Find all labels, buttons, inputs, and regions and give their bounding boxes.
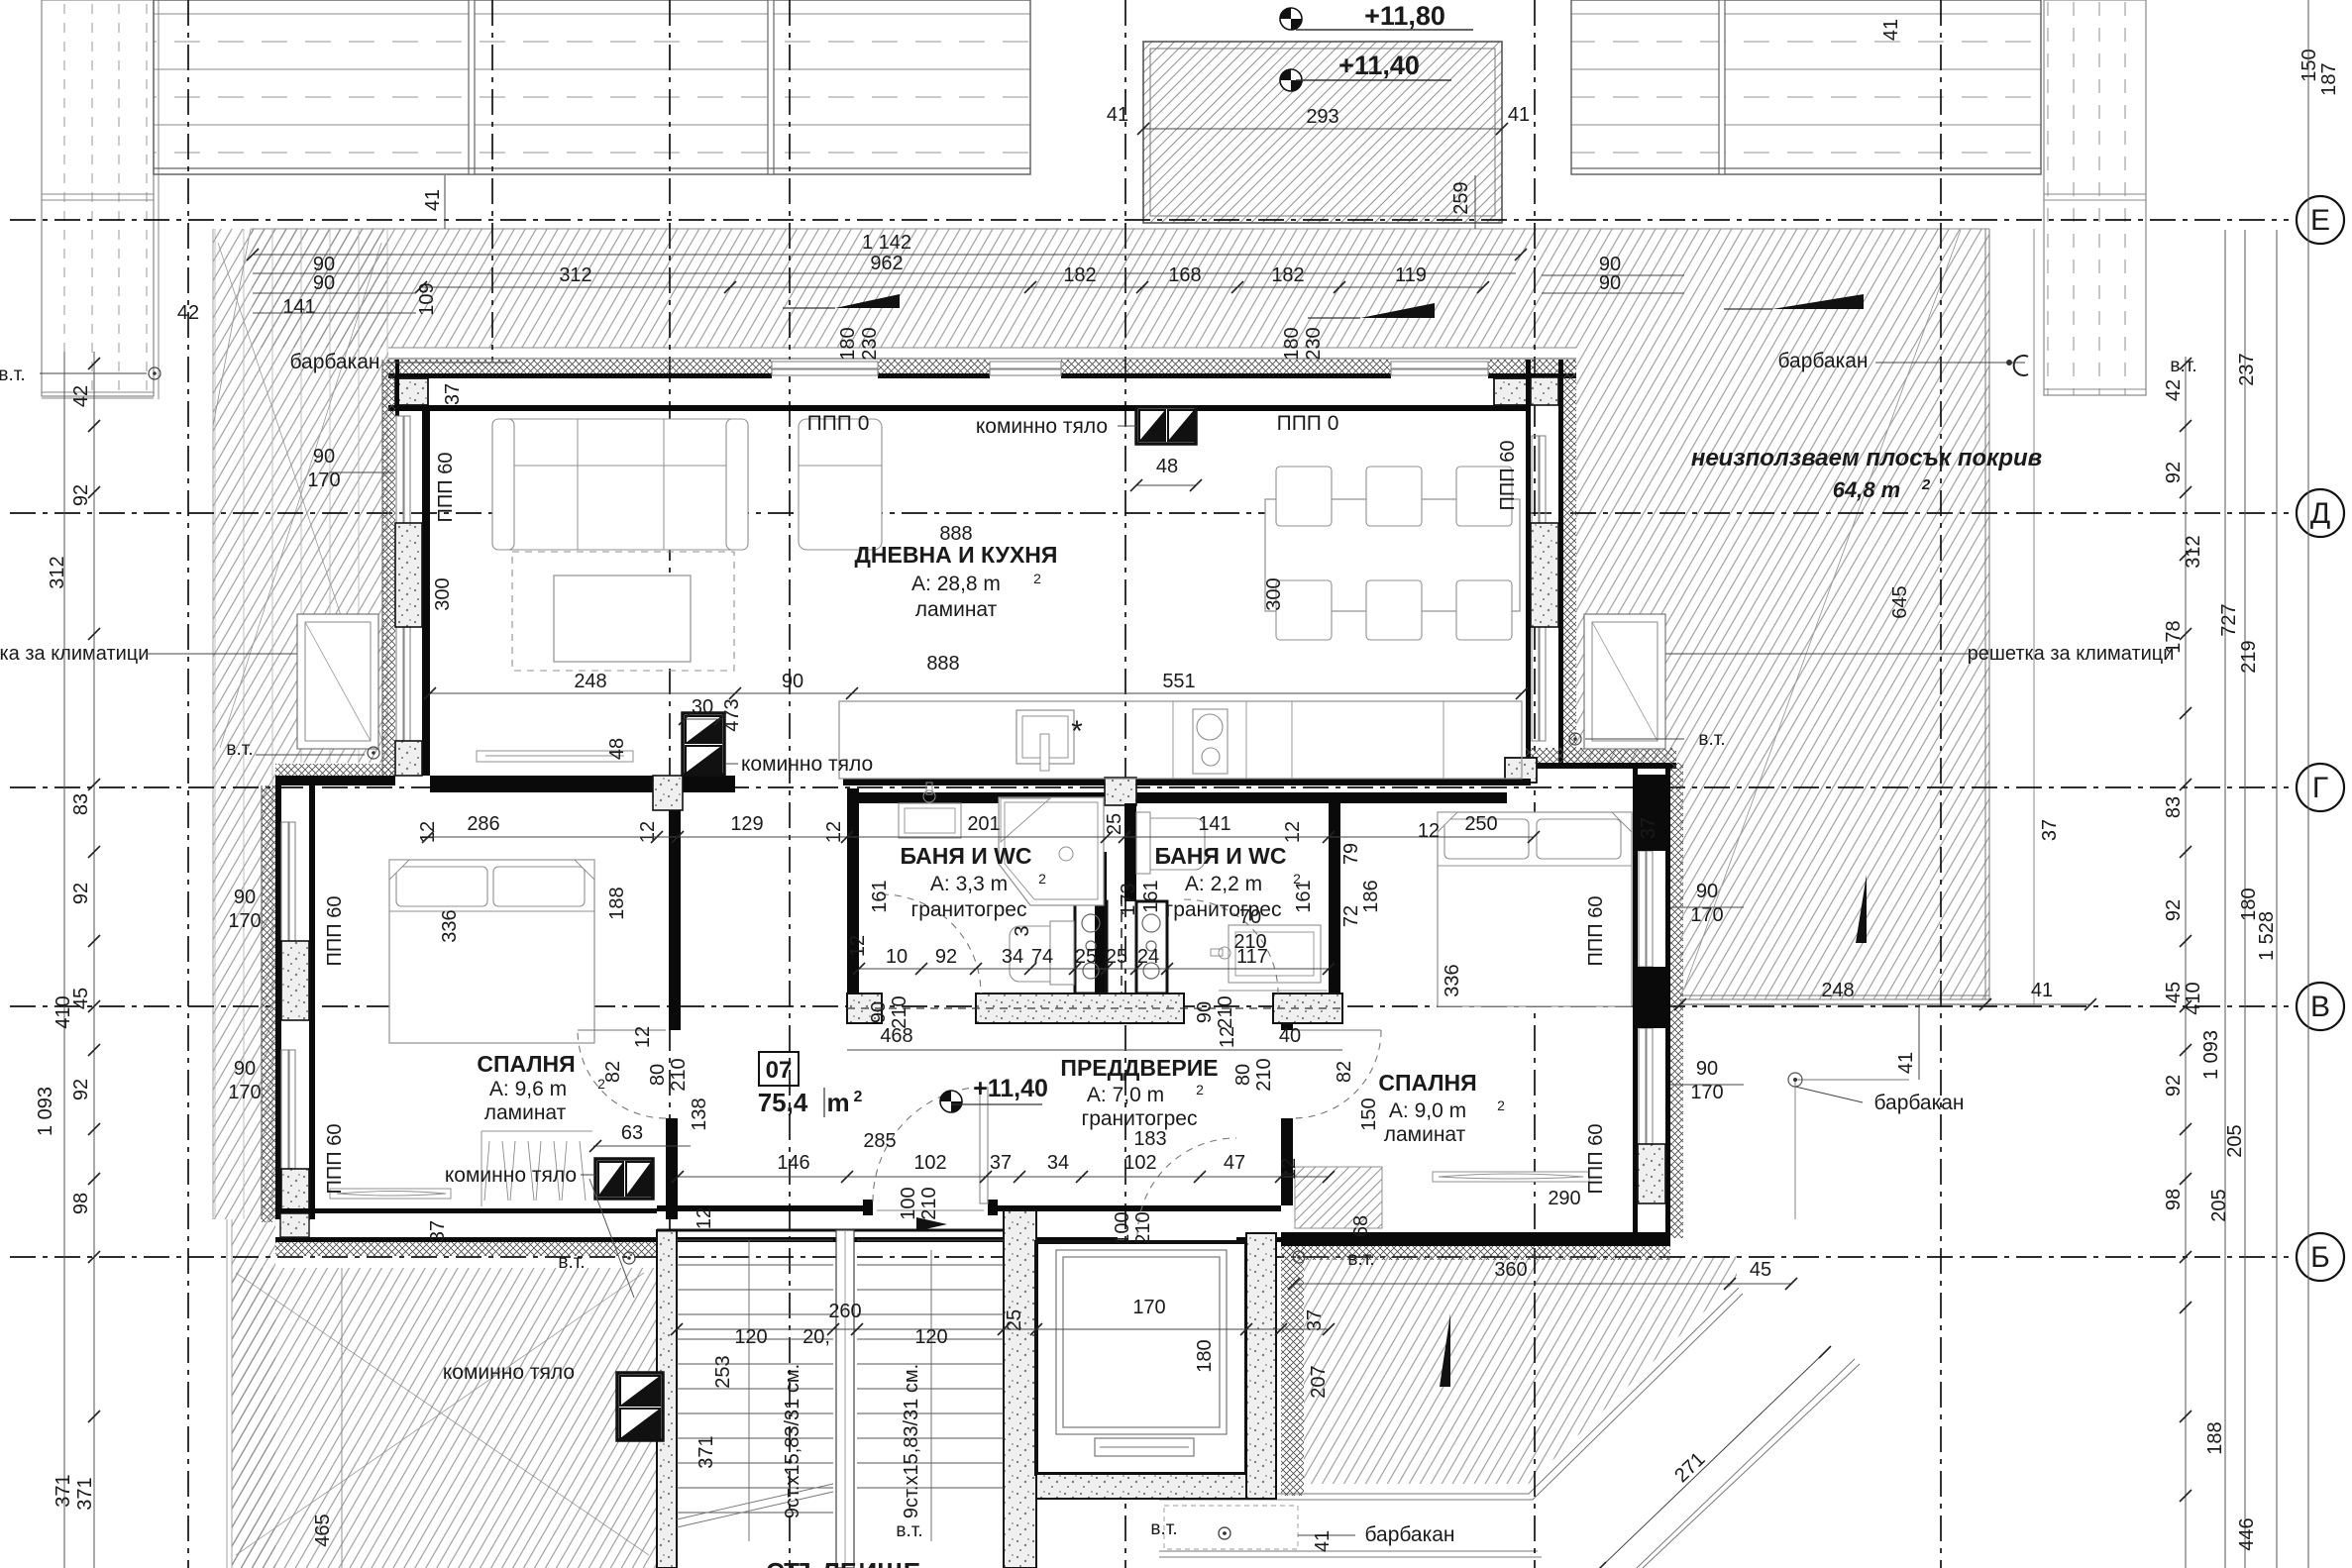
- svg-text:12: 12: [1418, 820, 1440, 842]
- svg-text:12: 12: [847, 935, 869, 957]
- svg-text:в.т.: в.т.: [896, 1520, 922, 1541]
- svg-text:07: 07: [766, 1057, 793, 1084]
- svg-text:ППП 60: ППП 60: [1497, 441, 1519, 511]
- svg-text:10: 10: [886, 946, 908, 968]
- svg-text:138: 138: [689, 1098, 710, 1130]
- svg-text:253: 253: [712, 1355, 734, 1388]
- svg-text:117: 117: [1236, 946, 1268, 968]
- svg-text:285: 285: [863, 1130, 896, 1152]
- svg-text:Д: Д: [2310, 497, 2330, 530]
- svg-text:41: 41: [1880, 19, 1902, 41]
- svg-text:90: 90: [868, 1001, 890, 1023]
- svg-text:248: 248: [1821, 980, 1854, 1001]
- svg-text:161: 161: [1293, 880, 1315, 912]
- svg-text:25: 25: [1004, 1309, 1025, 1331]
- svg-text:90: 90: [1696, 1058, 1718, 1080]
- svg-text:180: 180: [1281, 327, 1303, 360]
- svg-text:в.т.: в.т.: [1150, 1518, 1177, 1539]
- svg-text:12: 12: [632, 1026, 654, 1048]
- svg-text:92: 92: [2163, 899, 2185, 921]
- svg-text:2: 2: [854, 1089, 863, 1105]
- svg-text:1 093: 1 093: [35, 1087, 56, 1136]
- svg-text:45: 45: [1750, 1259, 1771, 1281]
- svg-text:1 093: 1 093: [2200, 1030, 2222, 1080]
- svg-text:37: 37: [427, 1220, 449, 1242]
- svg-text:962: 962: [870, 253, 903, 274]
- svg-text:9ст.х15,83/31 см.: 9ст.х15,83/31 см.: [901, 1364, 922, 1518]
- svg-text:25: 25: [1104, 813, 1125, 835]
- svg-text:410: 410: [2183, 982, 2204, 1014]
- svg-text:в.т.: в.т.: [1347, 1249, 1374, 1270]
- svg-text:гранитогрес: гранитогрес: [1082, 1107, 1198, 1130]
- svg-text:ламинат: ламинат: [915, 598, 998, 621]
- svg-text:гранитогрес: гранитогрес: [911, 898, 1027, 921]
- svg-text:25: 25: [1106, 946, 1127, 968]
- svg-text:37: 37: [1304, 1309, 1326, 1331]
- svg-text:42: 42: [2163, 379, 2185, 401]
- svg-text:102: 102: [1123, 1152, 1156, 1174]
- svg-text:63: 63: [621, 1122, 643, 1144]
- svg-text:3: 3: [1012, 925, 1033, 936]
- svg-text:727: 727: [2218, 603, 2240, 636]
- svg-text:12: 12: [1282, 821, 1304, 843]
- svg-text:12: 12: [823, 821, 845, 843]
- svg-text:12: 12: [1217, 1026, 1238, 1048]
- svg-text:+11,40: +11,40: [1338, 51, 1420, 80]
- svg-text:92: 92: [2163, 462, 2185, 483]
- svg-text:371: 371: [74, 1477, 96, 1510]
- svg-text:коминно тяло: коминно тяло: [443, 1361, 575, 1384]
- svg-text:210: 210: [1253, 1058, 1275, 1091]
- svg-text:барбакан: барбакан: [1777, 350, 1868, 372]
- svg-text:645: 645: [1889, 585, 1911, 618]
- svg-text:ППП 0: ППП 0: [807, 412, 870, 435]
- svg-text:146: 146: [777, 1152, 809, 1174]
- svg-text:180: 180: [837, 327, 859, 360]
- svg-text:300: 300: [432, 577, 454, 610]
- svg-text:210: 210: [668, 1058, 690, 1091]
- svg-text:41: 41: [1107, 104, 1128, 126]
- svg-text:37: 37: [2039, 819, 2061, 841]
- svg-text:m: m: [826, 1088, 849, 1117]
- svg-text:12: 12: [694, 1207, 715, 1229]
- svg-text:90: 90: [782, 671, 803, 692]
- svg-text:336: 336: [439, 909, 461, 942]
- svg-text:182: 182: [1271, 264, 1304, 286]
- svg-text:37: 37: [442, 383, 464, 405]
- svg-text:161: 161: [1140, 880, 1162, 912]
- svg-text:170: 170: [228, 1082, 261, 1103]
- svg-text:888: 888: [926, 653, 959, 675]
- svg-text:109: 109: [416, 282, 438, 315]
- svg-text:в.т.: в.т.: [558, 1252, 585, 1273]
- svg-text:в.т.: в.т.: [226, 739, 253, 760]
- svg-text:90: 90: [1696, 881, 1718, 902]
- svg-text:В: В: [2310, 991, 2330, 1023]
- svg-text:210: 210: [1215, 995, 1236, 1028]
- svg-text:41: 41: [2031, 980, 2053, 1001]
- svg-text:312: 312: [559, 264, 591, 286]
- svg-text:248: 248: [574, 671, 606, 692]
- svg-text:210: 210: [889, 995, 910, 1028]
- svg-text:90: 90: [313, 446, 335, 468]
- svg-text:168: 168: [1168, 264, 1201, 286]
- svg-text:80: 80: [1232, 1064, 1254, 1086]
- svg-text:150: 150: [2299, 49, 2320, 81]
- svg-text:решетка за климатици: решетка за климатици: [0, 643, 149, 665]
- svg-text:173: 173: [1118, 883, 1139, 915]
- svg-text:34: 34: [1002, 946, 1023, 968]
- svg-text:170: 170: [228, 910, 261, 932]
- svg-text:188: 188: [606, 887, 628, 919]
- svg-text:ППП 0: ППП 0: [1277, 412, 1339, 435]
- svg-text:286: 286: [467, 813, 499, 835]
- svg-text:300: 300: [1263, 577, 1285, 610]
- svg-text:82: 82: [602, 1061, 624, 1083]
- svg-text:9ст.х15,83/31 см.: 9ст.х15,83/31 см.: [782, 1364, 803, 1518]
- svg-text:293: 293: [1306, 106, 1338, 128]
- svg-text:83: 83: [70, 793, 92, 815]
- svg-text:гранитогрес: гранитогрес: [1166, 898, 1282, 921]
- svg-text:коминно тяло: коминно тяло: [976, 415, 1108, 438]
- svg-text:А: 7,0 m: А: 7,0 m: [1087, 1084, 1164, 1106]
- svg-text:92: 92: [70, 484, 92, 506]
- svg-text:188: 188: [2204, 1421, 2226, 1454]
- svg-text:41: 41: [1895, 1052, 1917, 1074]
- svg-text:98: 98: [2163, 1189, 2185, 1210]
- svg-text:92: 92: [2163, 1075, 2185, 1097]
- svg-text:219: 219: [2238, 640, 2260, 673]
- svg-text:12: 12: [1278, 1158, 1300, 1180]
- svg-text:37: 37: [1638, 817, 1659, 839]
- svg-text:64,8 m: 64,8 m: [1833, 477, 1901, 502]
- svg-text:40: 40: [1279, 1025, 1301, 1047]
- svg-text:180: 180: [1194, 1339, 1216, 1372]
- svg-text:100: 100: [1112, 1211, 1133, 1244]
- svg-text:2: 2: [1033, 571, 1041, 586]
- svg-text:ПРЕДДВЕРИЕ: ПРЕДДВЕРИЕ: [1060, 1055, 1218, 1081]
- svg-text:1 142: 1 142: [862, 232, 911, 254]
- svg-text:+11,40: +11,40: [973, 1075, 1048, 1102]
- svg-text:468: 468: [880, 1025, 912, 1047]
- svg-text:А: 2,2 m: А: 2,2 m: [1185, 873, 1262, 895]
- svg-text:80: 80: [647, 1064, 669, 1086]
- svg-text:ППП 60: ППП 60: [435, 453, 457, 523]
- svg-text:Е: Е: [2310, 204, 2330, 237]
- svg-text:А: 9,0 m: А: 9,0 m: [1389, 1099, 1466, 1122]
- svg-text:83: 83: [2163, 796, 2185, 818]
- svg-text:в.т.: в.т.: [0, 365, 26, 385]
- svg-text:170: 170: [1132, 1297, 1165, 1318]
- svg-text:551: 551: [1162, 671, 1195, 692]
- svg-text:ламинат: ламинат: [484, 1101, 567, 1124]
- svg-text:75,4: 75,4: [758, 1088, 808, 1117]
- svg-text:ППП 60: ППП 60: [1585, 1124, 1607, 1195]
- svg-text:41: 41: [1508, 104, 1530, 126]
- svg-text:79: 79: [1340, 843, 1362, 865]
- svg-text:201: 201: [967, 813, 1000, 835]
- svg-text:178: 178: [2163, 620, 2185, 653]
- svg-text:неизползваем плосък покрив: неизползваем плосък покрив: [1691, 445, 2042, 471]
- svg-text:41: 41: [1312, 1530, 1334, 1552]
- svg-text:А: 3,3 m: А: 3,3 m: [930, 873, 1008, 895]
- svg-text:183: 183: [1133, 1128, 1166, 1150]
- svg-text:БАНЯ И WC: БАНЯ И WC: [1154, 843, 1286, 869]
- svg-text:100: 100: [898, 1187, 919, 1219]
- svg-text:ППП 60: ППП 60: [324, 896, 346, 967]
- svg-text:37: 37: [990, 1152, 1012, 1174]
- svg-text:34: 34: [1047, 1152, 1069, 1174]
- svg-text:161: 161: [869, 880, 891, 912]
- svg-text:312: 312: [2183, 535, 2204, 568]
- svg-text:Г: Г: [2312, 772, 2328, 804]
- svg-text:30: 30: [692, 696, 713, 718]
- svg-text:+11,80: +11,80: [1364, 1, 1445, 31]
- svg-text:371: 371: [695, 1435, 717, 1468]
- svg-text:Б: Б: [2310, 1241, 2330, 1274]
- svg-text:СПАЛНЯ: СПАЛНЯ: [477, 1051, 575, 1077]
- svg-text:210: 210: [918, 1187, 940, 1219]
- svg-text:47: 47: [1224, 1152, 1245, 1174]
- svg-text:ППП 60: ППП 60: [324, 1124, 346, 1195]
- svg-text:2: 2: [1921, 476, 1931, 493]
- svg-text:48: 48: [1156, 456, 1178, 477]
- svg-text:42: 42: [177, 302, 199, 324]
- svg-text:260: 260: [828, 1301, 861, 1322]
- svg-text:465: 465: [312, 1514, 334, 1546]
- svg-text:82: 82: [1334, 1061, 1355, 1083]
- svg-text:барбакан: барбакан: [1873, 1092, 1964, 1114]
- svg-text:А: 9,6 m: А: 9,6 m: [489, 1078, 567, 1100]
- svg-text:187: 187: [2318, 62, 2340, 95]
- svg-text:коминно тяло: коминно тяло: [445, 1164, 577, 1187]
- svg-text:ДНЕВНА И КУХНЯ: ДНЕВНА И КУХНЯ: [855, 542, 1058, 568]
- svg-text:41: 41: [422, 189, 444, 211]
- svg-text:92: 92: [70, 1079, 92, 1100]
- svg-text:182: 182: [1063, 264, 1096, 286]
- svg-text:312: 312: [47, 556, 68, 588]
- svg-text:*: *: [1071, 715, 1083, 748]
- svg-text:коминно тяло: коминно тяло: [741, 753, 873, 776]
- svg-text:2: 2: [1038, 871, 1046, 887]
- svg-text:68: 68: [1350, 1215, 1372, 1237]
- svg-text:12: 12: [417, 821, 439, 843]
- svg-text:150: 150: [1358, 1098, 1380, 1130]
- svg-text:12: 12: [637, 821, 659, 843]
- svg-text:410: 410: [53, 995, 74, 1028]
- svg-text:42: 42: [70, 385, 92, 407]
- svg-text:92: 92: [70, 883, 92, 904]
- svg-text:250: 250: [1464, 813, 1497, 835]
- svg-text:90: 90: [313, 272, 335, 294]
- svg-text:А: 28,8 m: А: 28,8 m: [911, 573, 1001, 595]
- svg-text:186: 186: [1360, 880, 1382, 912]
- svg-text:102: 102: [913, 1152, 946, 1174]
- svg-text:СТЪЛБИЩЕ: СТЪЛБИЩЕ: [766, 1557, 920, 1568]
- svg-text:230: 230: [859, 327, 881, 360]
- svg-text:БАНЯ И WC: БАНЯ И WC: [900, 843, 1031, 869]
- svg-text:барбакан: барбакан: [1364, 1523, 1454, 1546]
- svg-text:446: 446: [2236, 1517, 2258, 1550]
- svg-text:1 528: 1 528: [2256, 911, 2278, 961]
- svg-text:2: 2: [1196, 1082, 1204, 1098]
- svg-text:90: 90: [234, 1058, 256, 1080]
- svg-text:141: 141: [282, 296, 315, 318]
- svg-text:45: 45: [2163, 982, 2185, 1003]
- svg-text:70: 70: [1239, 906, 1261, 928]
- svg-text:48: 48: [606, 738, 628, 760]
- svg-text:ППП 60: ППП 60: [1585, 896, 1607, 967]
- svg-text:237: 237: [2236, 353, 2258, 385]
- svg-text:решетка за климатици: решетка за климатици: [1968, 643, 2175, 665]
- svg-text:92: 92: [935, 946, 957, 968]
- svg-text:205: 205: [2224, 1124, 2246, 1157]
- svg-text:230: 230: [1303, 327, 1325, 360]
- svg-text:90: 90: [234, 887, 256, 908]
- svg-text:360: 360: [1494, 1259, 1527, 1281]
- svg-text:72: 72: [1340, 905, 1362, 927]
- svg-text:в.т.: в.т.: [1698, 729, 1725, 750]
- svg-text:ламинат: ламинат: [1384, 1123, 1466, 1146]
- svg-text:207: 207: [1308, 1365, 1330, 1398]
- svg-text:119: 119: [1395, 264, 1427, 286]
- svg-text:141: 141: [1198, 813, 1230, 835]
- svg-text:129: 129: [730, 813, 763, 835]
- svg-text:90: 90: [1194, 1001, 1216, 1023]
- svg-text:210: 210: [1132, 1211, 1154, 1244]
- svg-text:290: 290: [1548, 1188, 1580, 1209]
- svg-text:205: 205: [2208, 1189, 2230, 1221]
- svg-text:98: 98: [70, 1193, 92, 1214]
- svg-text:336: 336: [1442, 964, 1463, 996]
- svg-text:барбакан: барбакан: [289, 351, 379, 373]
- svg-text:259: 259: [1450, 181, 1472, 214]
- svg-text:371: 371: [53, 1474, 74, 1507]
- svg-text:2: 2: [1497, 1098, 1505, 1113]
- svg-text:СПАЛНЯ: СПАЛНЯ: [1378, 1070, 1476, 1096]
- svg-text:888: 888: [939, 523, 972, 545]
